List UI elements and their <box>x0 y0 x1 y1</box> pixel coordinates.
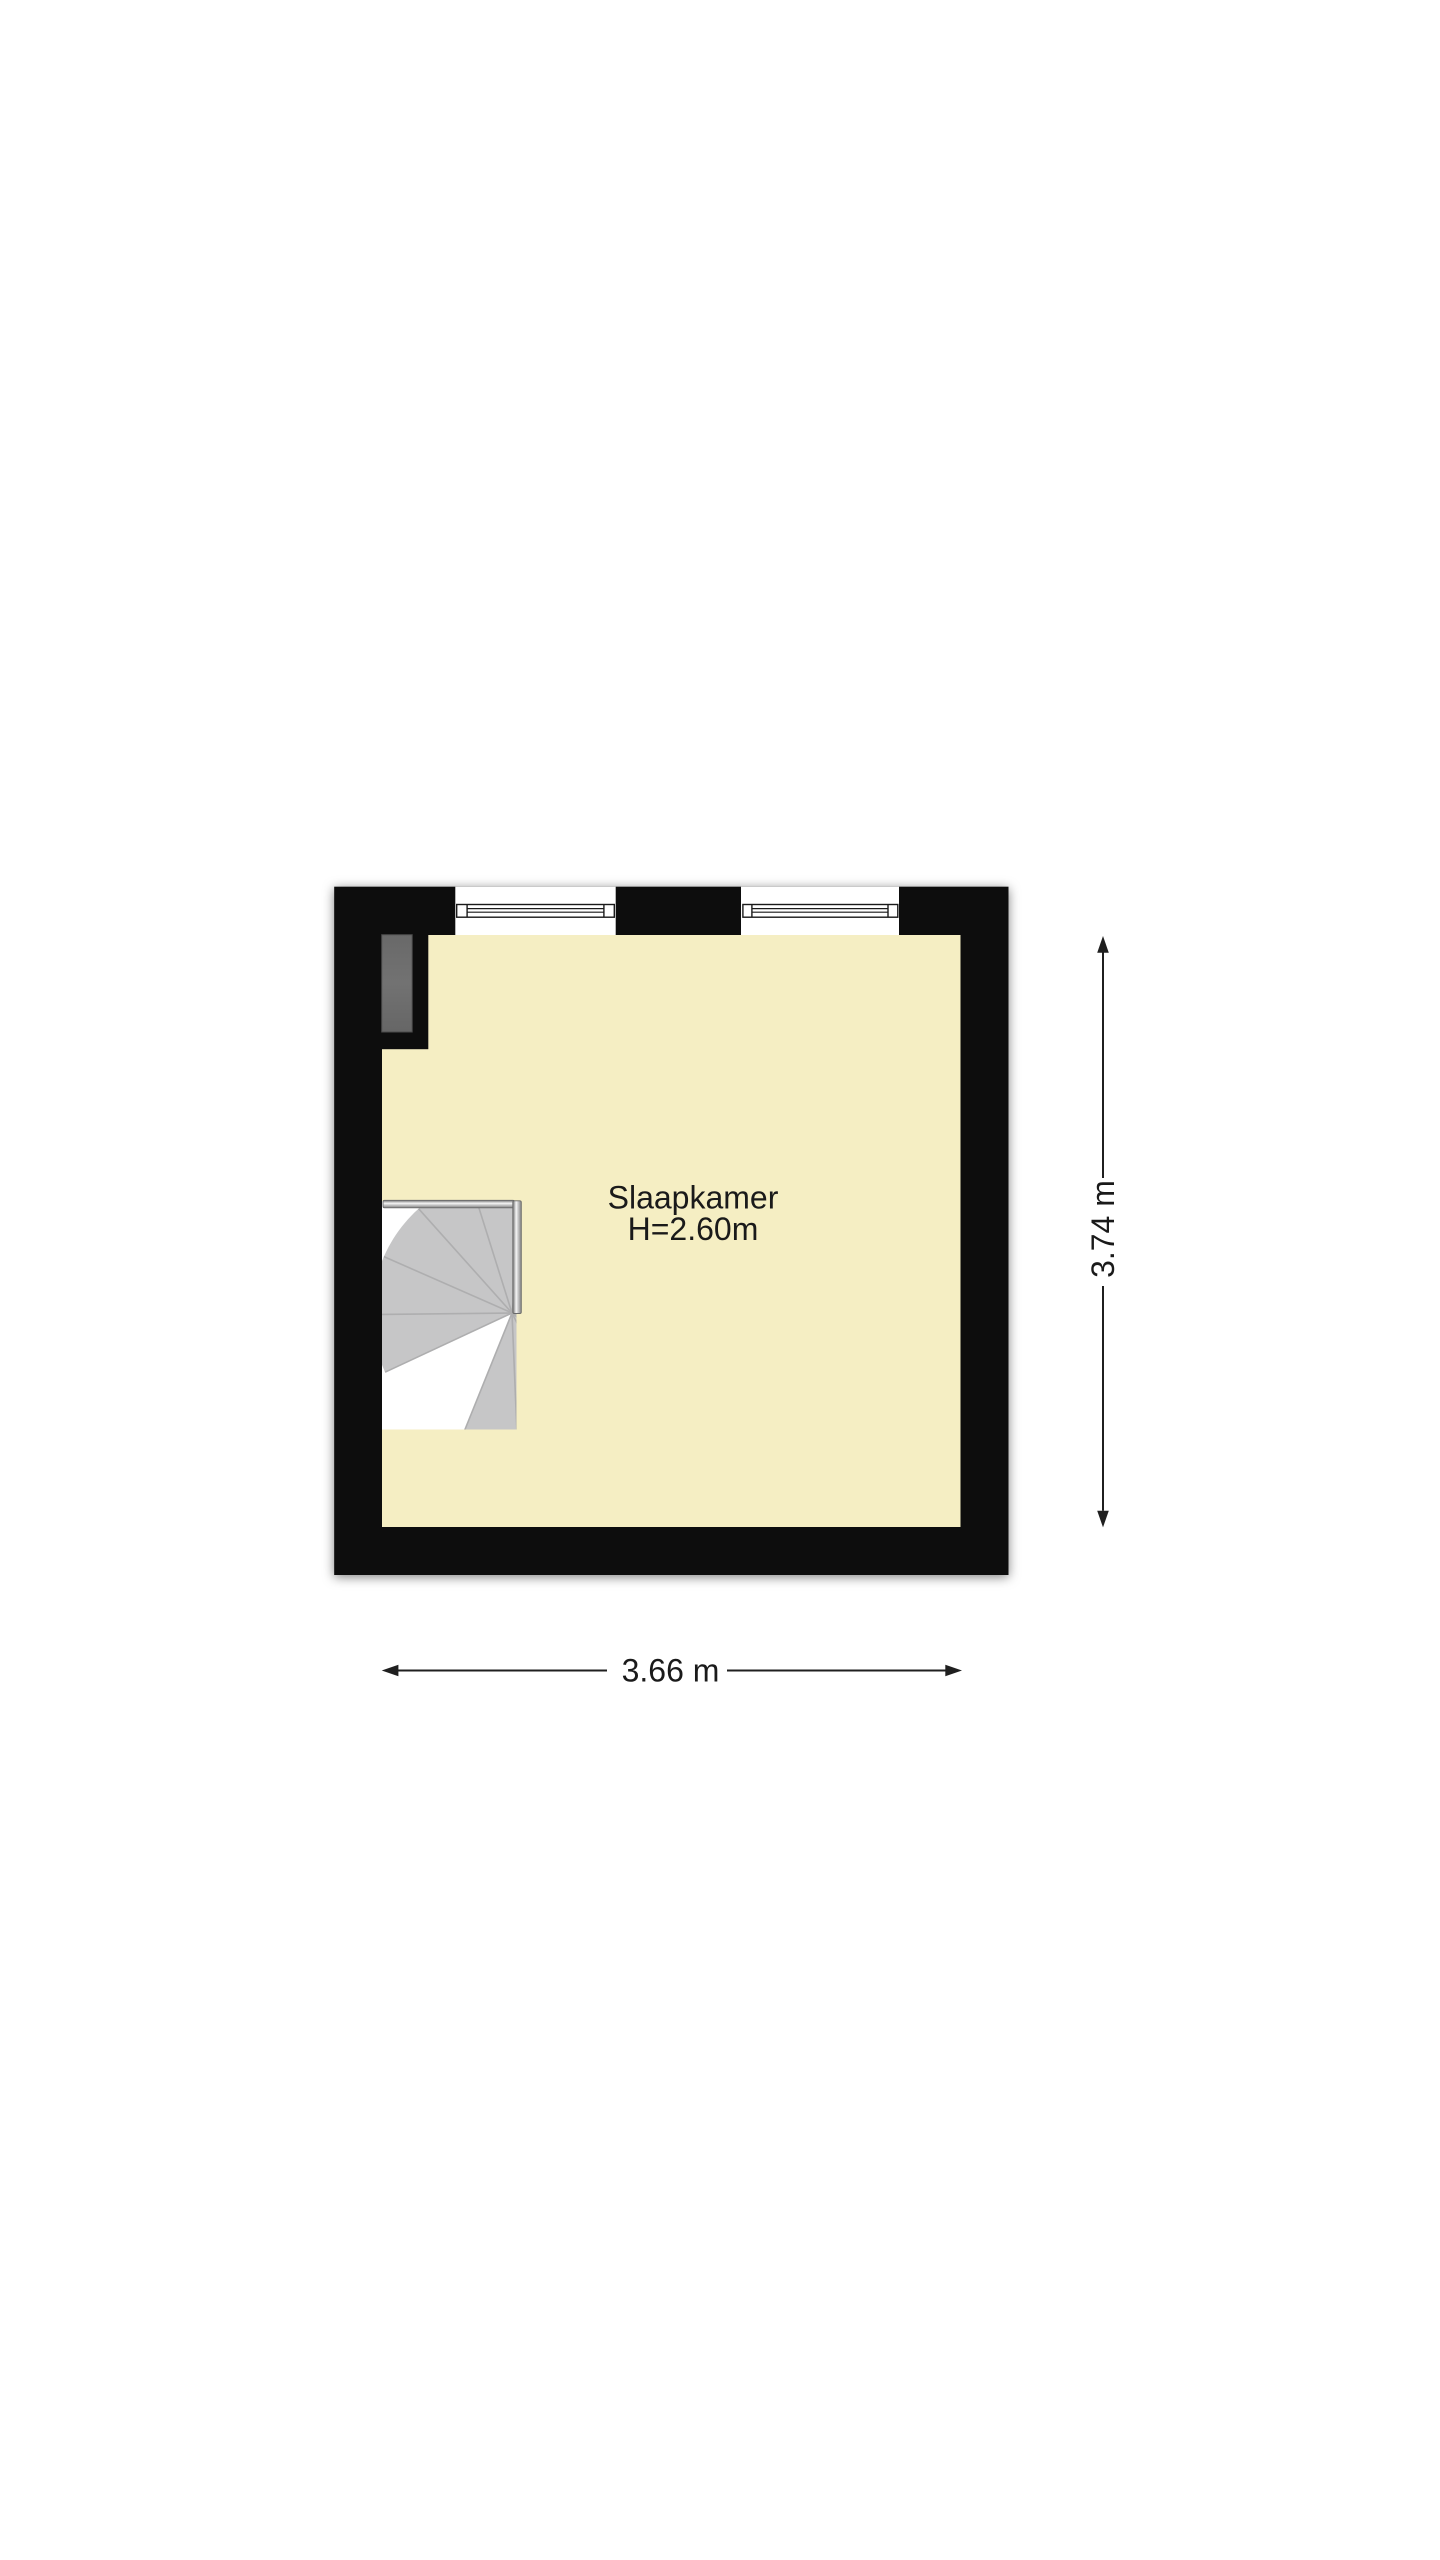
svg-text:H=2.60m: H=2.60m <box>628 1211 759 1247</box>
svg-text:3.66 m: 3.66 m <box>622 1653 720 1689</box>
svg-text:3.74 m: 3.74 m <box>1085 1180 1121 1278</box>
